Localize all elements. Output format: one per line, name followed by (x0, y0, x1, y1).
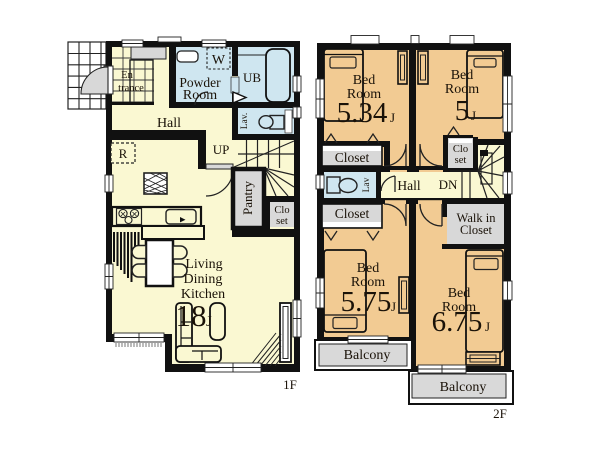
svg-text:Balcony: Balcony (440, 380, 487, 395)
svg-text:J: J (391, 299, 396, 314)
svg-text:Hall: Hall (157, 116, 181, 131)
svg-text:Balcony: Balcony (344, 348, 391, 363)
svg-text:6.75: 6.75 (432, 306, 483, 338)
svg-text:Dining: Dining (184, 272, 223, 287)
svg-text:5.34: 5.34 (337, 97, 388, 129)
svg-text:Closet: Closet (335, 206, 370, 221)
svg-text:DN: DN (439, 177, 458, 192)
svg-text:UB: UB (243, 70, 261, 85)
svg-text:J: J (206, 314, 212, 330)
svg-text:Bed: Bed (448, 286, 471, 301)
svg-text:Hall: Hall (397, 178, 420, 193)
svg-text:Closet: Closet (460, 223, 492, 237)
svg-text:1F: 1F (283, 377, 297, 392)
svg-text:R: R (119, 146, 128, 161)
svg-text:set: set (455, 155, 467, 166)
svg-text:Clo: Clo (274, 205, 289, 216)
svg-text:Pantry: Pantry (240, 181, 255, 215)
svg-text:Closet: Closet (335, 150, 370, 165)
svg-text:Living: Living (185, 257, 222, 272)
svg-text:J: J (485, 319, 490, 334)
svg-text:Lav: Lav (362, 177, 372, 192)
svg-text:Lav.: Lav. (240, 113, 250, 130)
svg-text:En: En (121, 70, 133, 81)
svg-text:Clo: Clo (453, 144, 468, 155)
svg-text:J: J (390, 110, 395, 125)
svg-text:18: 18 (176, 298, 207, 333)
svg-text:5.75: 5.75 (341, 286, 392, 318)
svg-text:W: W (212, 53, 226, 68)
svg-text:Bed: Bed (451, 68, 474, 83)
svg-text:Bed: Bed (353, 73, 376, 88)
svg-text:Room: Room (183, 88, 217, 103)
svg-text:UP: UP (213, 142, 230, 157)
svg-text:set: set (276, 216, 288, 227)
svg-text:Bed: Bed (357, 261, 380, 276)
svg-text:2F: 2F (493, 406, 507, 421)
svg-text:5: 5 (455, 95, 470, 127)
svg-text:trance: trance (118, 83, 144, 94)
svg-text:J: J (471, 108, 476, 123)
